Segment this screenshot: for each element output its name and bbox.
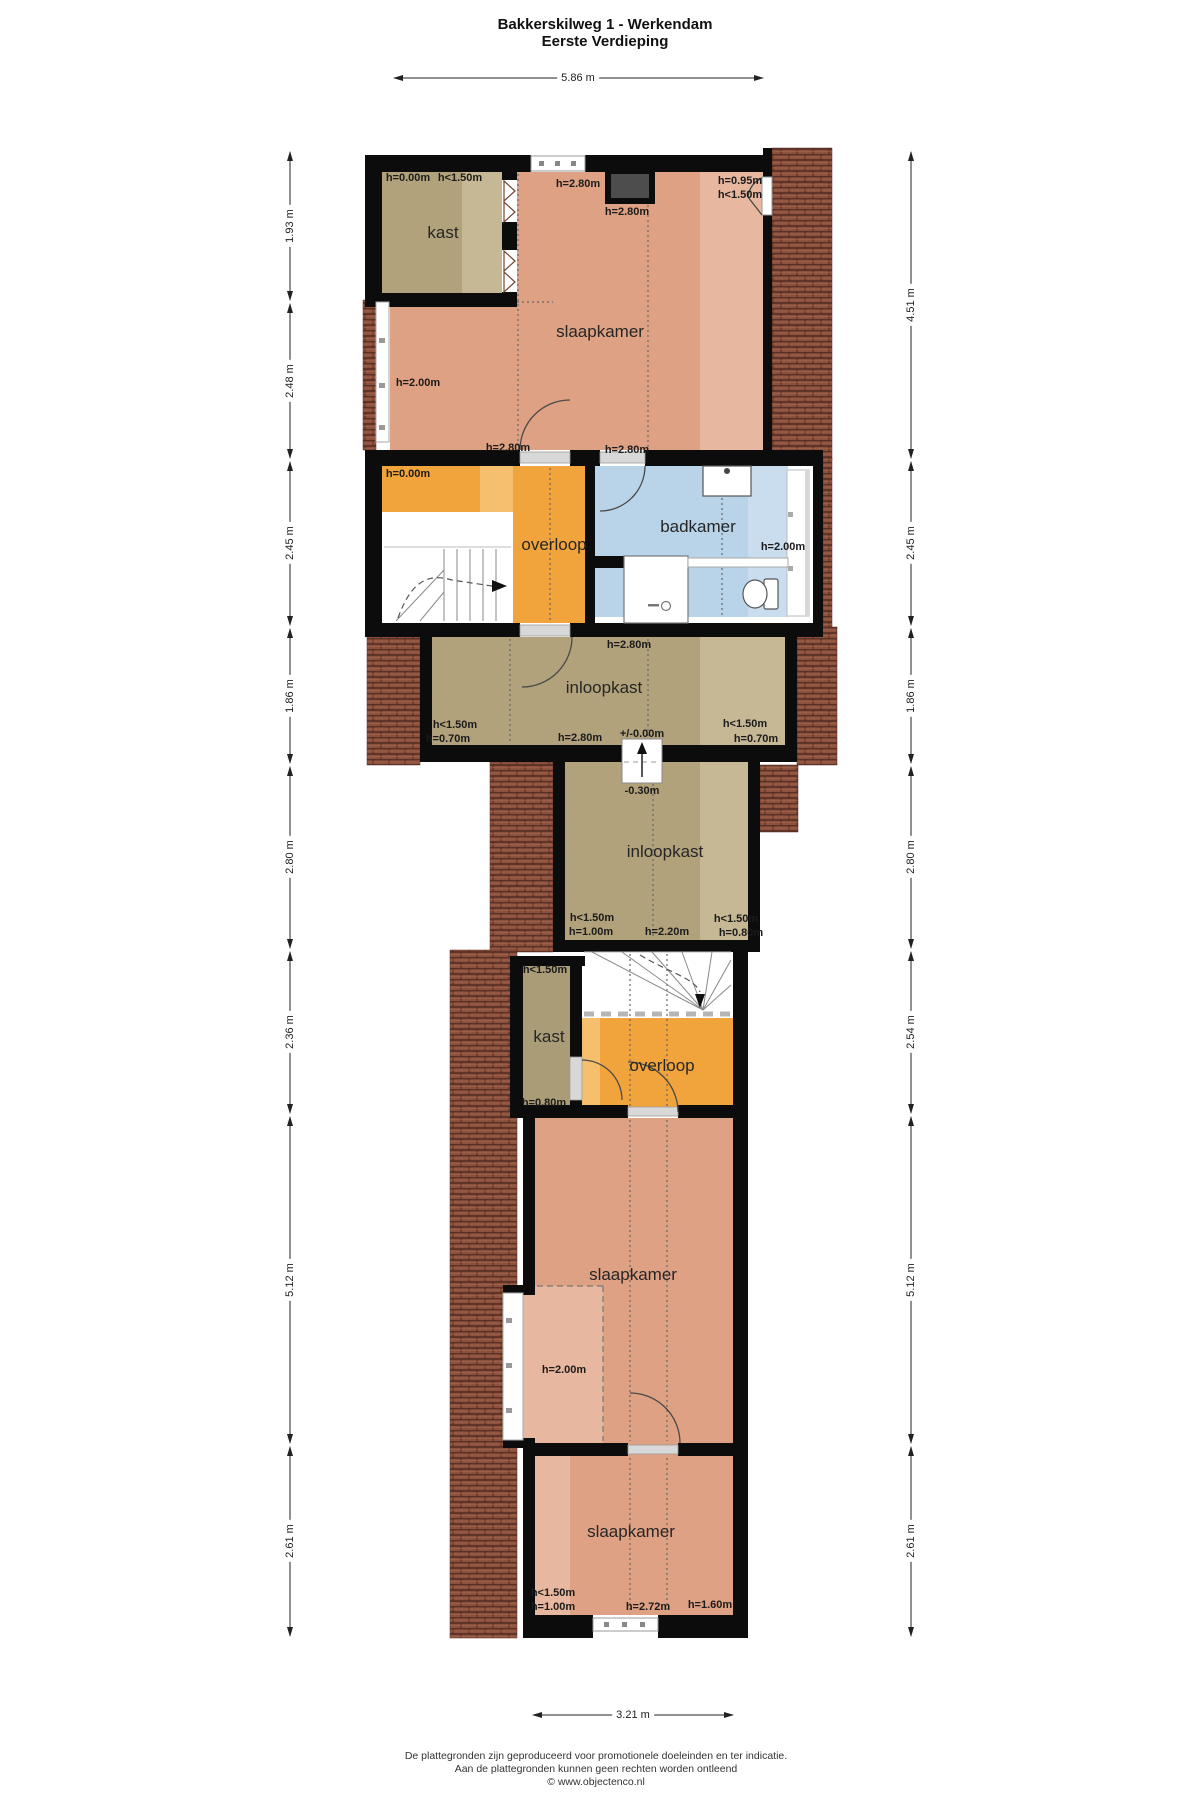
dim-right-6: 2.61 m	[905, 1520, 917, 1562]
room-label-overloop-top: overloop	[521, 535, 586, 555]
height-label: h=1.60m	[688, 1599, 732, 1611]
window-slaapkamer-top-left	[376, 302, 389, 442]
height-label: h=0.80m	[522, 1097, 566, 1109]
height-label: h<1.50m	[433, 719, 477, 731]
height-label: h=0.80m	[719, 927, 763, 939]
floor-slaapkamer-top-left	[390, 302, 517, 450]
height-label: h=0.00m	[386, 468, 430, 480]
faucet-icon	[724, 468, 730, 474]
disclaimer-line-2: Aan de plattegronden kunnen geen rechten…	[196, 1763, 996, 1777]
roof-right-low	[760, 765, 798, 832]
level-step	[622, 739, 662, 783]
roof-left-mid2	[490, 762, 553, 952]
dim-right-2: 1.86 m	[905, 675, 917, 717]
height-label: h=2.80m	[605, 444, 649, 456]
window-top-right	[762, 177, 772, 215]
room-label-slaapkamer-bottom: slaapkamer	[587, 1522, 675, 1542]
floors	[382, 172, 788, 1615]
roof-right-top	[772, 148, 832, 460]
dim-right-5: 5.12 m	[905, 1259, 917, 1301]
height-label: +/-0.00m	[620, 728, 664, 740]
shower	[624, 556, 688, 623]
height-label: h<1.50m	[570, 912, 614, 924]
roof-right-mid	[797, 627, 837, 765]
dim-left-7: 2.61 m	[284, 1520, 296, 1562]
height-label: h<1.50m	[723, 718, 767, 730]
height-label: h=2.80m	[556, 178, 600, 190]
dim-bottom: 3.21 m	[612, 1709, 654, 1721]
height-label: h=2.80m	[607, 639, 651, 651]
room-label-slaapkamer-top: slaapkamer	[556, 322, 644, 342]
dim-right-3: 2.80 m	[905, 836, 917, 878]
plan-subtitle: Eerste Verdieping	[305, 33, 905, 50]
height-label: h=0.70m	[426, 733, 470, 745]
room-label-overloop-mid: overloop	[629, 1056, 694, 1076]
room-label-badkamer: badkamer	[660, 517, 736, 537]
dim-left-0: 1.93 m	[284, 205, 296, 247]
room-label-inloopkast-2: inloopkast	[627, 842, 704, 862]
height-label: h=2.00m	[761, 541, 805, 553]
roof-left-top	[363, 300, 376, 450]
height-label: h=1.00m	[569, 926, 613, 938]
height-label: h<1.50m	[714, 913, 758, 925]
height-label: -0.30m	[625, 785, 660, 797]
dim-right-0: 4.51 m	[905, 284, 917, 326]
floor-overloop-corridor	[513, 512, 585, 623]
room-label-inloopkast-1: inloopkast	[566, 678, 643, 698]
dim-left-4: 2.80 m	[284, 836, 296, 878]
roof-right-bathroom	[823, 458, 832, 627]
height-label: h<1.50m	[523, 964, 567, 976]
room-label-kast-top: kast	[427, 223, 458, 243]
dim-left-6: 5.12 m	[284, 1259, 296, 1301]
floor-slaapkamer-top-light	[700, 172, 763, 450]
height-label: h=1.00m	[531, 1601, 575, 1613]
floor-overloop-top-light	[480, 466, 513, 512]
height-label: h=2.00m	[396, 377, 440, 389]
height-label: h=2.80m	[486, 442, 530, 454]
height-label: h=2.20m	[645, 926, 689, 938]
dim-left-2: 2.45 m	[284, 522, 296, 564]
dim-top: 5.86 m	[557, 72, 599, 84]
stairwell-top	[382, 512, 513, 623]
height-label: h<1.50m	[438, 172, 482, 184]
height-label: h=2.80m	[605, 206, 649, 218]
height-label: h=2.80m	[558, 732, 602, 744]
height-label: h<1.50m	[718, 189, 762, 201]
roof-left-mid1	[367, 623, 420, 765]
floor-overloop-mid-light	[582, 1018, 600, 1112]
toilet-bowl	[743, 580, 767, 608]
height-label: h=0.70m	[734, 733, 778, 745]
dim-left-3: 1.86 m	[284, 675, 296, 717]
copyright-line: © www.objectenco.nl	[196, 1776, 996, 1790]
plan-title: Bakkerskilweg 1 - Werkendam	[305, 16, 905, 33]
height-label: h<1.50m	[531, 1587, 575, 1599]
floor-kast-top-light	[462, 172, 502, 293]
dim-left-5: 2.36 m	[284, 1011, 296, 1053]
disclaimer-line-1: De plattegronden zijn geproduceerd voor …	[196, 1750, 996, 1764]
dim-right-4: 2.54 m	[905, 1011, 917, 1053]
height-label: h=2.72m	[626, 1601, 670, 1613]
height-label: h=2.00m	[542, 1364, 586, 1376]
room-label-kast-mid: kast	[533, 1027, 564, 1047]
shower-screen	[688, 558, 788, 567]
chimney	[611, 174, 649, 198]
dim-right-1: 2.45 m	[905, 522, 917, 564]
dim-left-1: 2.48 m	[284, 360, 296, 402]
height-label: h=0.00m	[386, 172, 430, 184]
height-label: h=0.95m	[718, 175, 762, 187]
room-label-slaapkamer-mid: slaapkamer	[589, 1265, 677, 1285]
